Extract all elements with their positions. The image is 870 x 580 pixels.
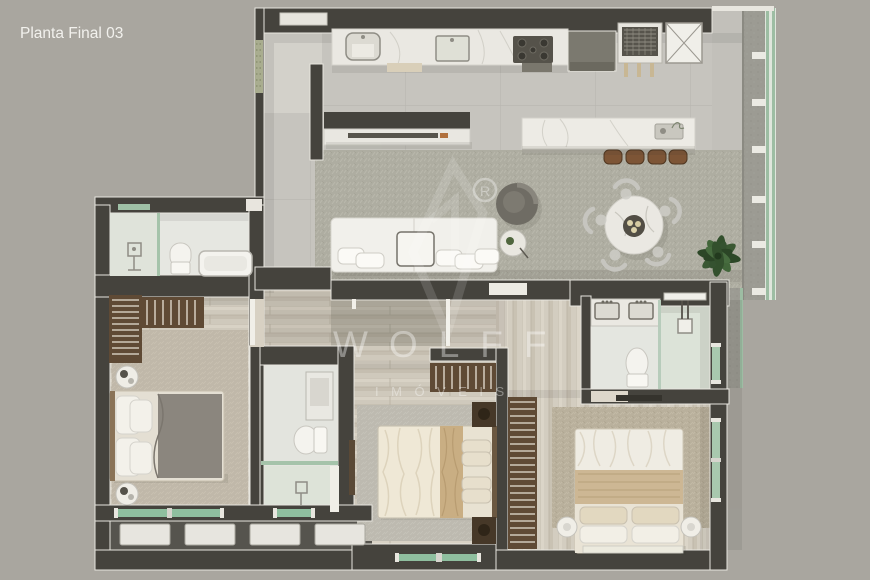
svg-text:Planta Final 03: Planta Final 03 <box>20 25 123 42</box>
svg-text:R: R <box>480 183 490 199</box>
svg-text:IMÓVEIS: IMÓVEIS <box>375 384 517 399</box>
svg-text:WOLFF: WOLFF <box>333 324 567 365</box>
